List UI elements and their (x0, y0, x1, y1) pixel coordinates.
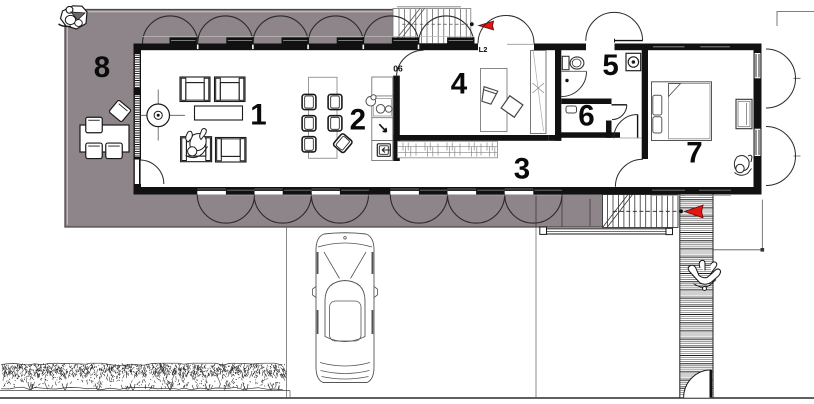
svg-text:L2: L2 (479, 45, 488, 54)
svg-text:1: 1 (250, 99, 266, 132)
svg-text:8: 8 (94, 51, 110, 84)
svg-text:7: 7 (686, 137, 702, 170)
svg-text:6: 6 (578, 100, 594, 133)
svg-text:3: 3 (514, 153, 530, 186)
svg-text:2: 2 (350, 104, 366, 137)
svg-text:06: 06 (393, 64, 403, 74)
svg-text:4: 4 (451, 68, 468, 101)
svg-text:5: 5 (602, 49, 618, 82)
